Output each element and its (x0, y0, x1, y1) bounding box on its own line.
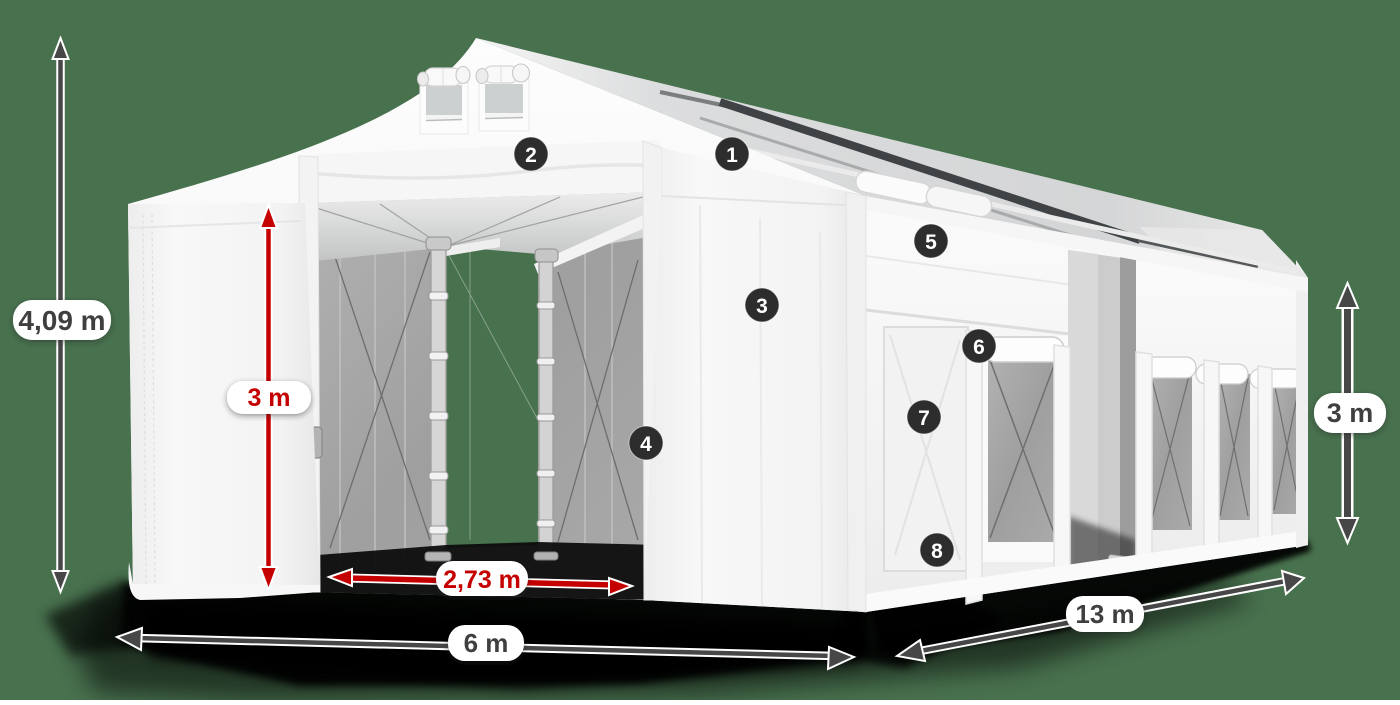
svg-text:6: 6 (973, 336, 985, 359)
svg-text:1: 1 (726, 144, 738, 167)
svg-text:2,73 m: 2,73 m (443, 566, 521, 594)
svg-text:3 m: 3 m (1327, 398, 1374, 428)
svg-text:3: 3 (756, 295, 768, 318)
svg-text:3 m: 3 m (247, 384, 290, 412)
svg-text:7: 7 (918, 407, 930, 430)
svg-text:8: 8 (931, 540, 943, 563)
svg-text:5: 5 (925, 231, 937, 254)
svg-text:2: 2 (525, 144, 537, 167)
svg-text:13 m: 13 m (1075, 599, 1134, 629)
svg-text:4: 4 (640, 433, 652, 456)
svg-text:6 m: 6 m (464, 628, 509, 658)
svg-text:4,09 m: 4,09 m (18, 305, 105, 336)
